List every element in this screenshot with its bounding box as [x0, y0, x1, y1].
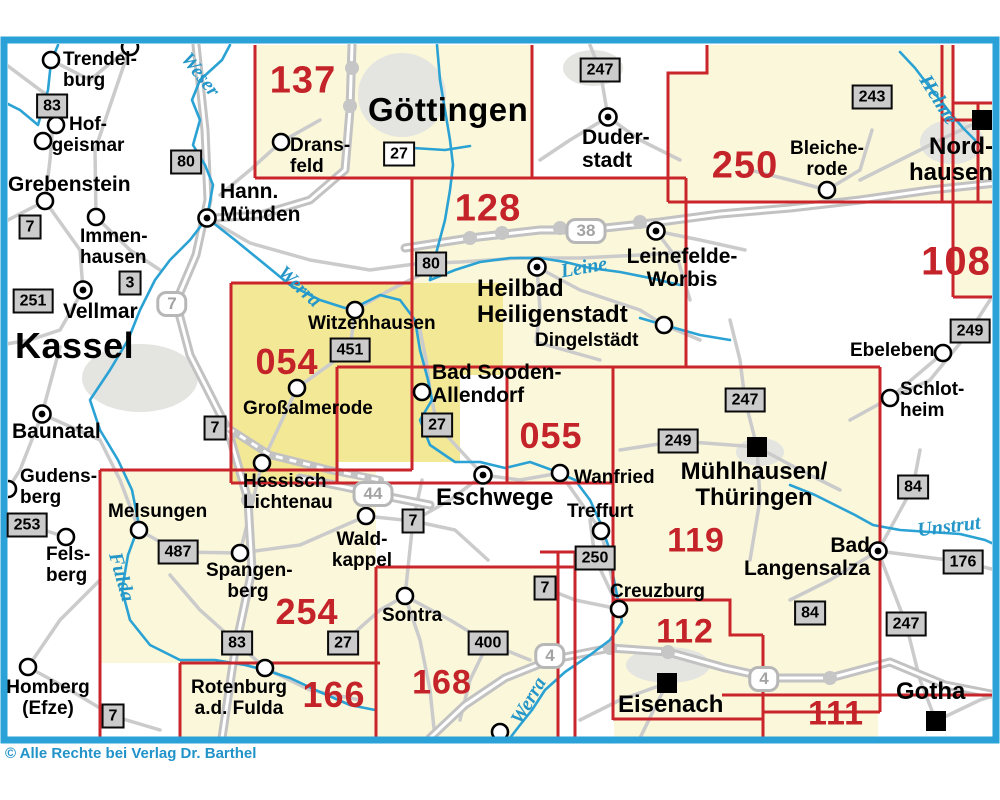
- town-label-dingelstaedt: Dingelstädt: [535, 331, 638, 352]
- town-label-trendelburg: Trendel- burg: [63, 50, 137, 91]
- road-badge-b7-creuzburg: 7: [534, 576, 557, 601]
- town-label-grebenstein: Grebenstein: [8, 174, 131, 197]
- sheet-number-111[interactable]: 111: [808, 695, 864, 734]
- road-badge-b247-duderstadt: 247: [580, 58, 621, 83]
- sheet-number-055[interactable]: 055: [519, 415, 582, 457]
- town-label-gudensberg: Gudens- berg: [20, 467, 97, 508]
- town-label-hofgeismar: Hof- geismar: [48, 115, 128, 156]
- road-badge-b251: 251: [13, 289, 54, 314]
- town-label-duderstadt: Duder- stadt: [582, 127, 650, 172]
- road-badge-b27-south: 27: [327, 631, 359, 656]
- road-badge-b83: 83: [36, 94, 68, 119]
- road-badge-b7-north: 7: [19, 215, 42, 240]
- road-badge-b80-heiligenstadt: 80: [415, 252, 447, 277]
- town-label-muehlhausen: Mühlhausen/ Thüringen: [674, 459, 834, 511]
- road-badge-b249-east: 249: [950, 319, 991, 344]
- town-label-wanfried: Wanfried: [574, 468, 655, 489]
- sheet-number-128[interactable]: 128: [455, 188, 521, 231]
- town-label-homberg: Homberg (Efze): [2, 678, 94, 719]
- road-badge-b253: 253: [7, 513, 48, 538]
- motorway-shield-a4-east: 4: [748, 666, 779, 692]
- town-label-kassel: Kassel: [15, 327, 134, 366]
- town-label-ebeleben: Ebeleben: [850, 341, 934, 362]
- road-badge-b7-eschwege: 7: [402, 509, 425, 534]
- town-label-hann-muenden: Hann. Münden: [220, 181, 300, 226]
- map-index-page: 137 128 250 108 054 055 119 254 112 166 …: [0, 0, 1000, 800]
- sheet-number-108[interactable]: 108: [921, 240, 991, 285]
- sheet-number-119[interactable]: 119: [667, 522, 725, 561]
- town-label-bad-langensalza: Bad Langensalza: [738, 535, 870, 580]
- town-label-baunatal: Baunatal: [12, 421, 101, 444]
- road-badge-b451: 451: [330, 338, 371, 363]
- town-label-bad-sooden-allendorf: Bad Sooden- Allendorf: [432, 362, 562, 407]
- motorway-shield-a38: 38: [566, 218, 607, 244]
- road-badge-b84-north: 84: [897, 475, 929, 500]
- town-label-eschwege: Eschwege: [436, 485, 553, 511]
- town-label-eisenach: Eisenach: [618, 692, 723, 718]
- sheet-number-250[interactable]: 250: [712, 145, 778, 188]
- motorway-shield-a4-west: 4: [534, 643, 565, 669]
- copyright-notice: © Alle Rechte bei Verlag Dr. Barthel: [5, 745, 256, 762]
- town-label-grossalmerode: Großalmerode: [243, 399, 373, 420]
- town-label-schlotheim: Schlot- heim: [900, 380, 964, 421]
- town-label-bleicherode: Bleiche- rode: [786, 139, 868, 180]
- road-badge-b84-south: 84: [794, 601, 826, 626]
- town-label-creuzburg: Creuzburg: [610, 582, 705, 603]
- road-badge-b247-muehlhausen: 247: [725, 388, 766, 413]
- town-label-felsberg: Fels- berg: [46, 545, 90, 586]
- road-badge-b3: 3: [119, 271, 142, 296]
- road-badge-b400: 400: [468, 631, 509, 656]
- sheet-number-137[interactable]: 137: [270, 60, 336, 103]
- sheet-number-168[interactable]: 168: [412, 664, 472, 703]
- town-label-rotenburg: Rotenburg a.d. Fulda: [184, 678, 294, 719]
- town-label-vellmar: Vellmar: [63, 301, 138, 324]
- town-label-goettingen: Göttingen: [368, 92, 528, 128]
- town-label-witzenhausen: Witzenhausen: [308, 314, 436, 335]
- road-badge-b243: 243: [852, 85, 893, 110]
- town-label-treffurt: Treffurt: [567, 502, 634, 523]
- town-label-waldkappel: Wald- kappel: [327, 530, 397, 571]
- town-label-spangenberg: Spangen- berg: [206, 561, 290, 602]
- town-label-heilbad-heiligenstadt: Heilbad Heiligenstadt: [477, 276, 628, 328]
- road-badge-b176: 176: [943, 550, 984, 575]
- road-badge-b27-allendorf: 27: [421, 413, 453, 438]
- road-badge-b249-muehlhausen: 249: [658, 429, 699, 454]
- road-badge-b27-goettingen: 27: [383, 142, 415, 167]
- sheet-number-054[interactable]: 054: [255, 341, 318, 383]
- road-badge-b487: 487: [158, 540, 199, 565]
- sheet-number-166[interactable]: 166: [302, 674, 365, 716]
- motorway-shield-a7: 7: [156, 291, 187, 317]
- town-label-immenhausen: Immen- hausen: [80, 227, 148, 268]
- road-badge-b80: 80: [170, 150, 202, 175]
- road-badge-b7-homberg: 7: [102, 704, 125, 729]
- town-label-melsungen: Melsungen: [108, 502, 207, 523]
- motorway-shield-a44: 44: [353, 481, 394, 507]
- road-badge-b247-gotha: 247: [886, 612, 927, 637]
- town-label-nordhausen: Nord- hausen: [901, 134, 993, 186]
- road-badge-b7-kassel-south: 7: [204, 416, 227, 441]
- town-label-hessisch-lichtenau: Hessisch Lichtenau: [243, 472, 333, 513]
- town-label-sontra: Sontra: [382, 606, 442, 627]
- road-badge-b83-south: 83: [221, 631, 253, 656]
- town-label-leinefelde-worbis: Leinefelde- Worbis: [622, 246, 742, 291]
- sheet-number-112[interactable]: 112: [656, 613, 714, 652]
- road-badge-b250: 250: [575, 546, 616, 571]
- town-label-dransfeld: Drans- feld: [290, 136, 350, 177]
- town-label-gotha: Gotha: [896, 679, 965, 705]
